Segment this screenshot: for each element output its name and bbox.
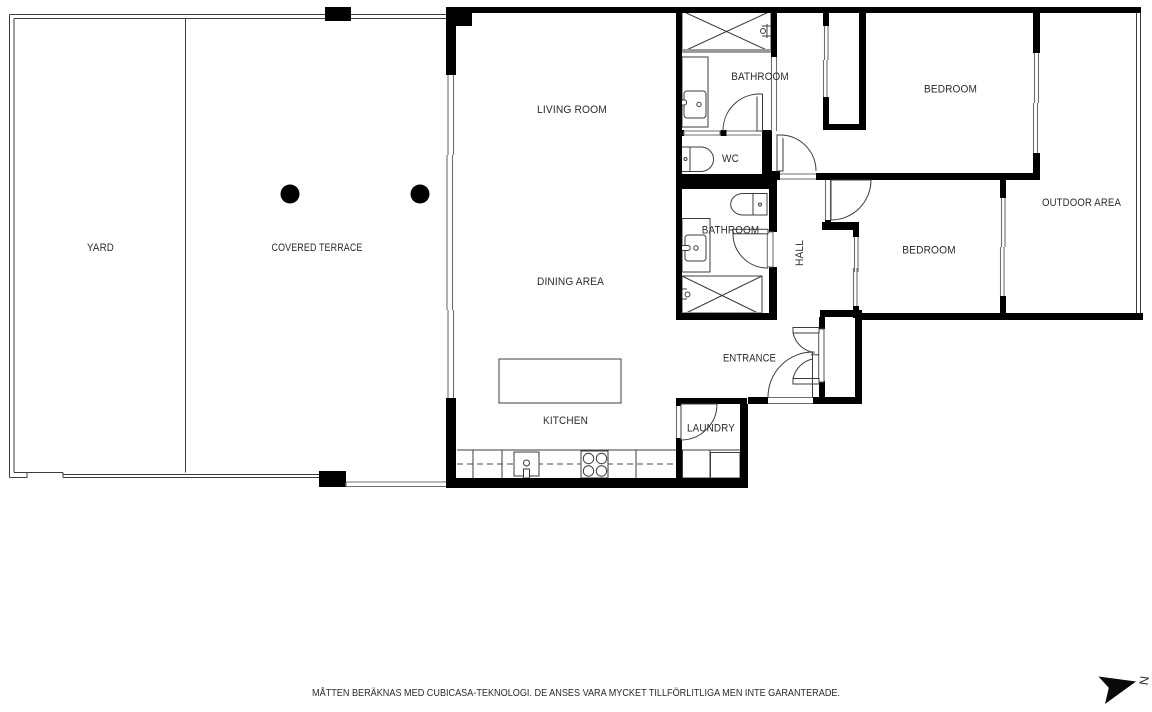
svg-text:WC: WC xyxy=(722,153,739,165)
svg-text:ENTRANCE: ENTRANCE xyxy=(723,353,776,365)
svg-text:LAUNDRY: LAUNDRY xyxy=(687,423,735,435)
svg-text:BEDROOM: BEDROOM xyxy=(902,245,956,257)
svg-text:BATHROOM: BATHROOM xyxy=(731,71,789,83)
svg-text:OUTDOOR AREA: OUTDOOR AREA xyxy=(1042,197,1121,209)
svg-text:COVERED TERRACE: COVERED TERRACE xyxy=(272,242,363,254)
svg-text:N: N xyxy=(1136,675,1151,686)
svg-text:BATHROOM: BATHROOM xyxy=(702,225,760,237)
svg-text:DINING AREA: DINING AREA xyxy=(537,276,604,288)
svg-text:MÅTTEN BERÄKNAS MED CUBICASA-T: MÅTTEN BERÄKNAS MED CUBICASA-TEKNOLOGI. … xyxy=(312,686,840,699)
svg-text:HALL: HALL xyxy=(794,240,806,266)
svg-text:LIVING ROOM: LIVING ROOM xyxy=(537,104,607,116)
svg-text:YARD: YARD xyxy=(87,242,114,254)
svg-text:KITCHEN: KITCHEN xyxy=(543,415,588,427)
svg-text:BEDROOM: BEDROOM xyxy=(924,84,977,96)
